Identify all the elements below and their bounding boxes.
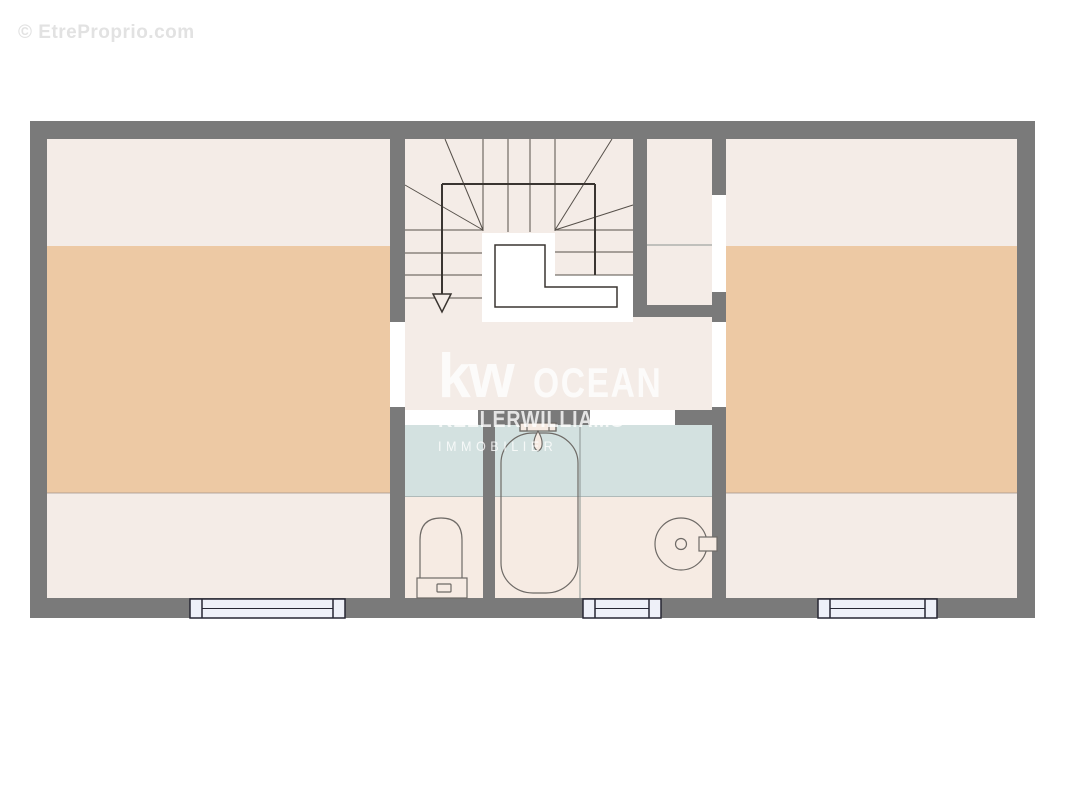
kw-logo: kw	[438, 352, 513, 402]
bedroom-left-full-height-zone	[47, 246, 390, 493]
window-left	[190, 599, 345, 618]
window-bathroom	[583, 599, 661, 618]
bedroom-right-floor	[726, 139, 1017, 598]
wall-stairs-closet	[633, 139, 647, 317]
door-opening-closet	[712, 195, 726, 292]
agency-name: OCEAN	[533, 366, 662, 400]
watermark-agency-line1: kw OCEAN	[438, 352, 694, 402]
watermark-etreproprio: © EtreProprio.com	[18, 22, 195, 44]
floorplan-canvas: © EtreProprio.com kw OCEAN KELLERWILLIAM…	[0, 0, 1066, 800]
door-opening-bedroom-right	[712, 322, 726, 407]
window-right	[818, 599, 937, 618]
agency-tagline: IMMOBILIER	[438, 438, 669, 454]
agency-brand: KELLERWILLIAMS	[438, 406, 656, 433]
bathroom-dry-zone	[405, 497, 712, 598]
door-opening-bedroom-left	[390, 322, 405, 407]
bedroom-left-floor	[47, 139, 390, 598]
bedroom-right-full-height-zone	[726, 246, 1017, 493]
watermark-agency: kw OCEAN KELLERWILLIAMS IMMOBILIER	[438, 352, 694, 454]
washbasin-tap	[699, 537, 717, 551]
